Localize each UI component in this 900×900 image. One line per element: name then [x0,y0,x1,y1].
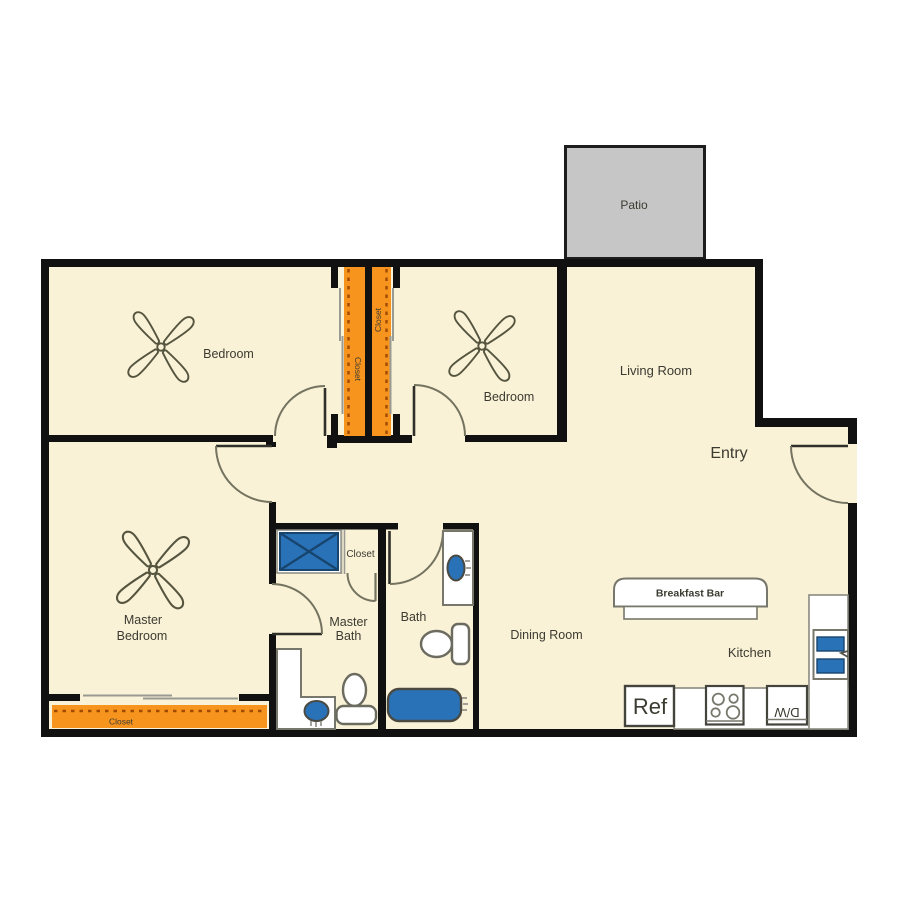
svg-text:Closet: Closet [353,357,363,382]
svg-text:Closet: Closet [109,717,134,727]
svg-text:Bath: Bath [401,610,427,624]
svg-text:Bath: Bath [336,629,362,643]
svg-text:Closet: Closet [373,307,383,332]
svg-text:Breakfast Bar: Breakfast Bar [656,588,724,600]
svg-text:Master: Master [329,615,367,629]
svg-text:Dining Room: Dining Room [510,628,582,642]
svg-text:Ref: Ref [633,694,668,719]
svg-text:Closet: Closet [346,549,375,560]
svg-text:Bedroom: Bedroom [203,347,254,361]
svg-text:Kitchen: Kitchen [728,645,771,660]
svg-text:Master: Master [124,613,162,627]
svg-text:Living Room: Living Room [620,363,692,378]
svg-text:Entry: Entry [710,445,747,462]
svg-text:Bedroom: Bedroom [484,390,535,404]
svg-text:D/W: D/W [774,705,800,720]
svg-text:Bedroom: Bedroom [117,629,168,643]
svg-text:Patio: Patio [620,198,648,212]
